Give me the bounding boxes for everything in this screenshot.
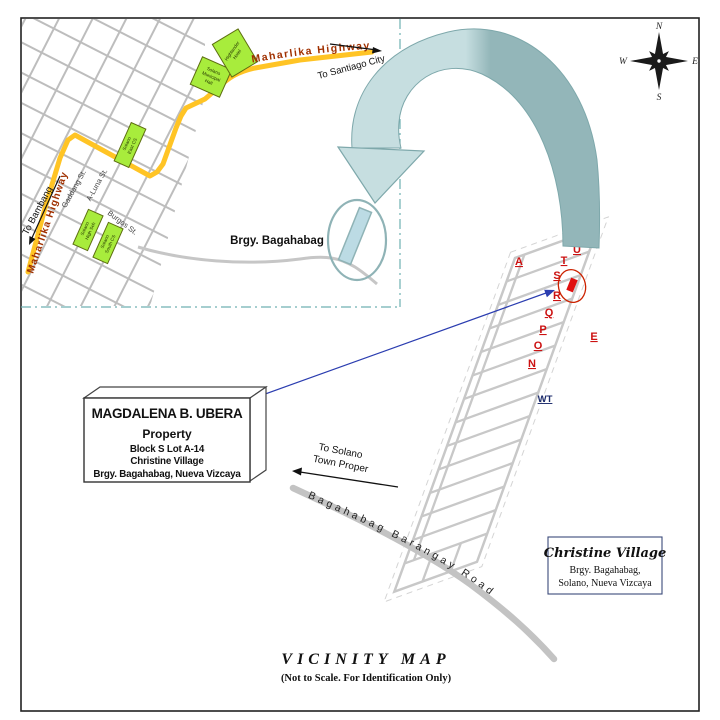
water-tank-label: WT [538,394,553,405]
block-letter-n: N [528,358,536,370]
compass-center [657,59,660,62]
property-owner: MAGDALENA B. UBERA [92,406,243,421]
to-solano-direction: To Solano Town Proper [292,442,398,487]
to-solano-arrowhead [292,468,302,476]
compass-rose: N E S W [619,22,698,103]
property-village: Christine Village [130,456,204,467]
block-letter-p: P [539,324,546,336]
site-strip-marker [338,208,371,265]
to-solano-arrow [300,472,398,487]
compass-e-label: E [691,57,698,67]
block-letter-e: E [590,331,597,343]
village-name-box: Christine Village Brgy. Bagahabag, Solan… [544,537,667,594]
to-santiago-arrowhead [372,47,382,54]
compass-n-label: N [655,22,663,32]
block-letter-s: S [553,270,560,282]
ribbon-arrowhead [338,147,424,203]
block-letter-a: A [515,256,523,268]
compass-s-label: S [657,93,662,103]
property-lot: Block S Lot A-14 [130,444,205,455]
brgy-bagahabag-label: Brgy. Bagahabag [230,235,324,247]
property-box-right-face [250,387,266,481]
block-letter-o: O [534,340,543,352]
property-address: Brgy. Bagahabag, Nueva Vizcaya [93,469,241,480]
inset-town-map: Solano Municipal Hall Highlander Hotel S… [20,18,386,307]
map-subtitle: (Not to Scale. For Identification Only) [281,673,452,684]
village-box-title: Christine Village [544,546,667,561]
vicinity-map-svg: Solano Municipal Hall Highlander Hotel S… [0,0,720,720]
map-title: VICINITY MAP [281,651,450,668]
vicinity-map-page: Solano Municipal Hall Highlander Hotel S… [0,0,720,720]
village-box-line1: Brgy. Bagahabag, [569,565,640,576]
block-letter-q: Q [545,307,554,319]
village-box-line2: Solano, Nueva Vizcaya [558,578,652,589]
block-letter-t: T [561,255,568,267]
street-grid [21,18,205,307]
ribbon-body [352,29,600,248]
compass-w-label: W [619,57,628,67]
property-box-top-face [84,387,266,398]
property-type: Property [142,427,192,441]
